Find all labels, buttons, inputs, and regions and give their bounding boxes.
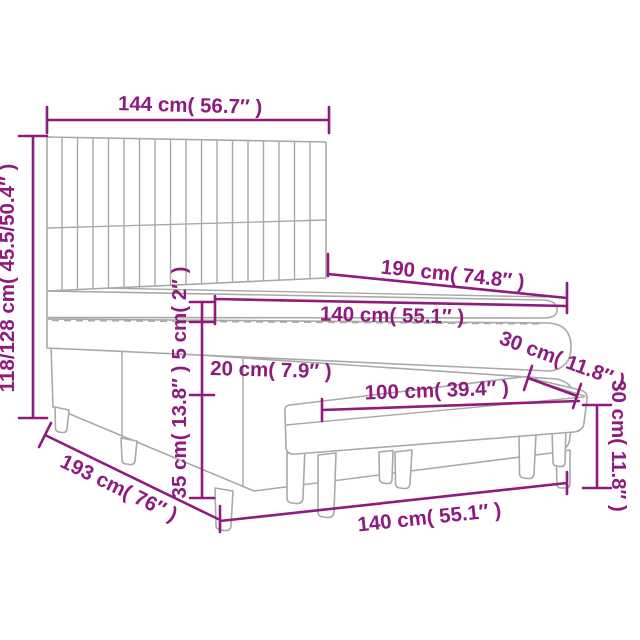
- dim-line: [19, 136, 47, 418]
- bench-leg: [379, 451, 393, 484]
- height-range-label: 118/128 cm( 45.5/50.4″ ): [0, 164, 19, 393]
- bench-height-label: 30 cm( 11.8″ ): [607, 380, 630, 512]
- bench-leg: [395, 450, 412, 489]
- dim-line: [583, 405, 611, 488]
- bed-leg: [55, 407, 69, 433]
- bed-illustration: [47, 137, 574, 531]
- mattress-thickness-label: 20 cm( 7.9″ ): [210, 357, 332, 383]
- bench-leg: [287, 447, 305, 504]
- diagram-canvas: 144 cm( 56.7″ ) 118/128 cm( 45.5/50.4″ )…: [0, 0, 640, 640]
- dim-height-range: 118/128 cm( 45.5/50.4″ ): [0, 136, 47, 418]
- bench-leg: [519, 434, 536, 479]
- dim-headboard-width: 144 cm( 56.7″ ): [47, 92, 329, 133]
- dim-bench-height: 30 cm( 11.8″ ): [583, 380, 630, 512]
- bed-leg: [121, 438, 137, 465]
- mattress-width-label: 140 cm( 55.1″ ): [320, 302, 465, 328]
- product-dimension-diagram: 144 cm( 56.7″ ) 118/128 cm( 45.5/50.4″ )…: [0, 0, 640, 640]
- total-length-label: 193 cm( 76″ ): [57, 450, 181, 526]
- headboard-width-label: 144 cm( 56.7″ ): [118, 92, 263, 119]
- base-height-label: 35 cm( 13.8″ ): [168, 366, 191, 499]
- topper-thickness-label: 5 cm( 2″ ): [168, 267, 191, 360]
- bed-leg: [215, 488, 233, 531]
